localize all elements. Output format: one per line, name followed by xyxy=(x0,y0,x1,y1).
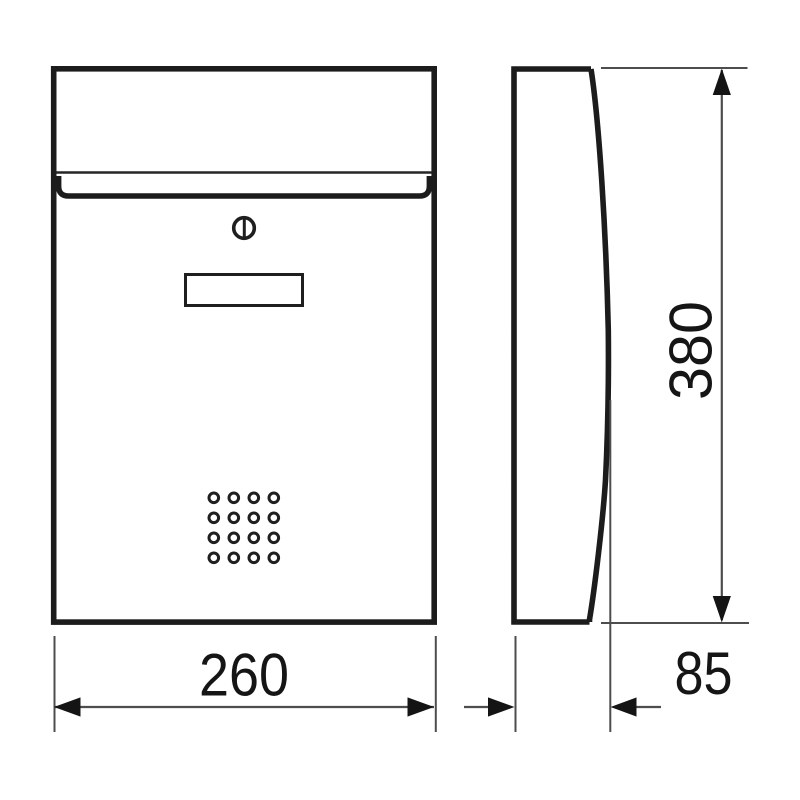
svg-text:380: 380 xyxy=(658,301,725,400)
svg-text:260: 260 xyxy=(199,642,289,709)
svg-text:85: 85 xyxy=(675,640,733,707)
